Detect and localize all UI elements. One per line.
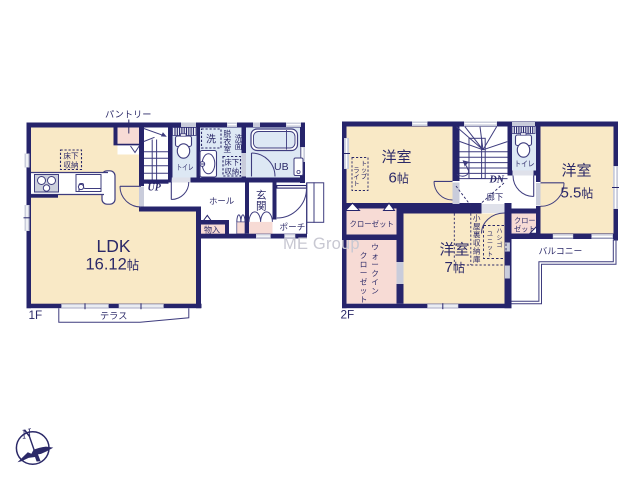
svg-text:16.12帖: 16.12帖 (86, 256, 140, 274)
svg-text:ウォークイン: ウォークイン (371, 243, 379, 296)
svg-text:5.5帖: 5.5帖 (561, 185, 594, 202)
svg-text:小屋裏収納庫: 小屋裏収納庫 (473, 213, 481, 265)
svg-text:収納: 収納 (224, 167, 239, 176)
svg-text:トイレ: トイレ (177, 163, 194, 172)
svg-text:DN: DN (489, 174, 505, 185)
svg-text:ME Group: ME Group (283, 235, 360, 253)
svg-text:クローゼット: クローゼット (514, 216, 536, 234)
svg-text:パントリー: パントリー (105, 110, 151, 120)
svg-text:ポーチ: ポーチ (280, 222, 306, 232)
svg-text:洋室: 洋室 (562, 163, 592, 180)
svg-text:クローゼット: クローゼット (350, 220, 394, 229)
svg-text:ホール: ホール (209, 196, 234, 206)
svg-text:6帖: 6帖 (389, 170, 409, 187)
svg-text:床下: 床下 (63, 151, 79, 161)
svg-text:UB: UB (274, 161, 289, 173)
svg-text:洋室: 洋室 (382, 149, 412, 166)
svg-text:洋室: 洋室 (440, 242, 470, 259)
svg-text:トイレ: トイレ (515, 160, 535, 169)
svg-text:洗: 洗 (206, 134, 216, 146)
svg-text:廊下: 廊下 (487, 192, 504, 202)
svg-text:床下: 床下 (224, 158, 239, 167)
svg-text:脱衣室: 脱衣室 (223, 129, 231, 155)
svg-text:トップ: トップ (361, 161, 368, 181)
svg-text:バルコニー: バルコニー (539, 246, 583, 256)
svg-text:2F: 2F (341, 307, 355, 321)
svg-text:ライト: ライト (353, 167, 359, 188)
svg-text:ユニット: ユニット (487, 231, 493, 258)
svg-text:クローゼット: クローゼット (360, 251, 368, 304)
svg-text:玄関: 玄関 (256, 189, 267, 213)
svg-text:洗面: 洗面 (235, 133, 243, 151)
svg-text:テラス: テラス (100, 311, 127, 321)
svg-text:LDK: LDK (97, 236, 131, 256)
svg-text:物入: 物入 (204, 224, 220, 234)
svg-text:1F: 1F (29, 308, 43, 322)
svg-text:収納: 収納 (63, 160, 78, 170)
svg-text:UP: UP (148, 182, 162, 193)
svg-text:7帖: 7帖 (445, 259, 465, 276)
svg-text:ハシゴ: ハシゴ (496, 228, 502, 249)
